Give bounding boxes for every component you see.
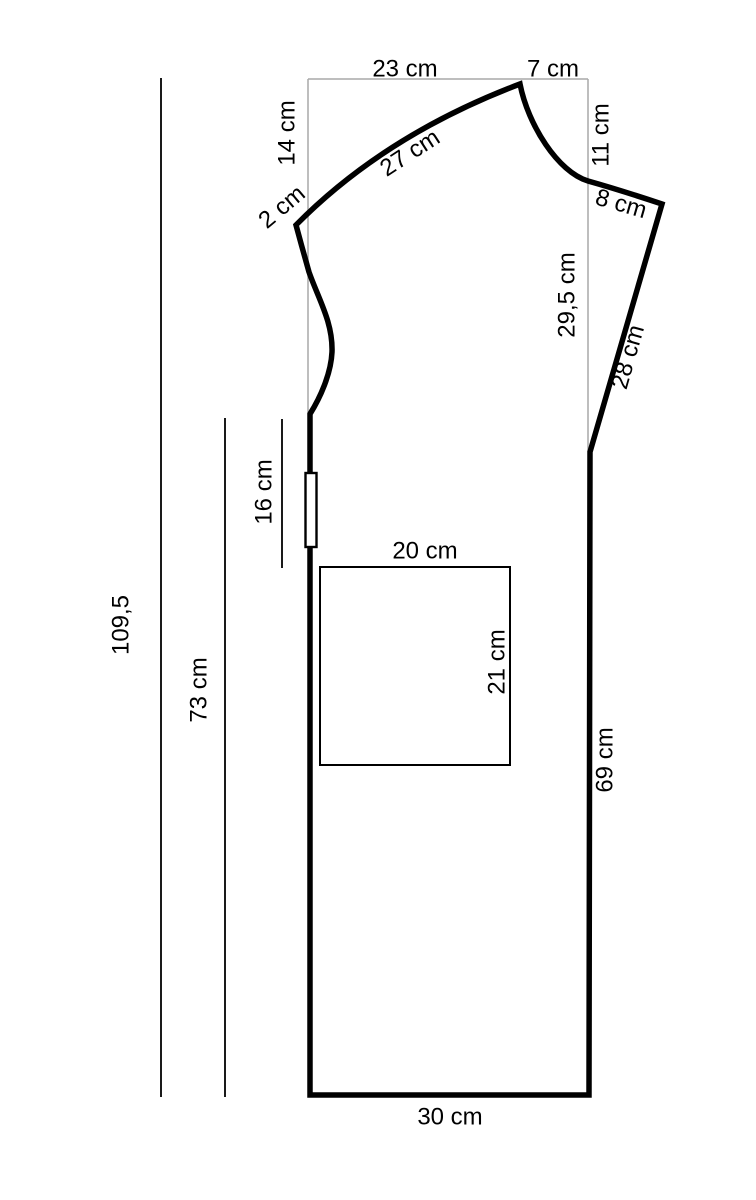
label-top-width: 23 cm bbox=[372, 56, 437, 83]
dimension-lines bbox=[161, 78, 282, 1097]
reference-lines bbox=[308, 79, 588, 452]
label-right-side-length: 69 cm bbox=[592, 727, 619, 792]
label-pocket-width: 20 cm bbox=[392, 538, 457, 565]
label-slit: 16 cm bbox=[251, 459, 278, 524]
label-side-length: 73 cm bbox=[186, 657, 213, 722]
garment-outline bbox=[296, 84, 662, 1095]
slit-mark bbox=[306, 473, 317, 547]
pattern-drawing: 23 cm 7 cm 14 cm 27 cm 2 cm 11 cm 8 cm 2… bbox=[0, 0, 756, 1200]
label-pocket-height: 21 cm bbox=[484, 629, 511, 694]
label-neck-depth: 11 cm bbox=[588, 103, 615, 167]
label-raglan-side: 28 cm bbox=[606, 322, 650, 392]
pattern-diagram: 23 cm 7 cm 14 cm 27 cm 2 cm 11 cm 8 cm 2… bbox=[0, 0, 756, 1200]
label-notch: 2 cm bbox=[253, 180, 310, 234]
label-neck-width: 7 cm bbox=[527, 56, 579, 83]
label-neck-curve: 8 cm bbox=[592, 184, 649, 224]
label-hem-width: 30 cm bbox=[417, 1104, 482, 1131]
label-shoulder-seam: 27 cm bbox=[375, 124, 445, 182]
pocket-rect bbox=[320, 567, 510, 765]
label-armhole-depth: 29,5 cm bbox=[554, 252, 581, 337]
label-front-drop: 14 cm bbox=[274, 100, 301, 165]
measurement-labels: 23 cm 7 cm 14 cm 27 cm 2 cm 11 cm 8 cm 2… bbox=[108, 56, 650, 1131]
label-total-length: 109,5 bbox=[108, 595, 135, 655]
